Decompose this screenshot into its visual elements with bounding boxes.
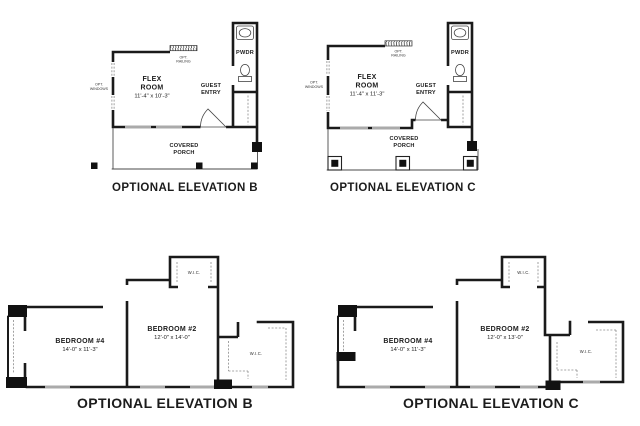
porch-column	[91, 163, 98, 170]
covered-porch-label: PORCH	[393, 143, 414, 149]
pwdr-label: PWDR	[451, 50, 469, 56]
guest-entry-label: ENTRY	[201, 90, 221, 96]
plan-caption: OPTIONAL ELEVATION B	[77, 395, 253, 411]
flex-room-dims: 11'-4" x 11'-3"	[350, 92, 385, 98]
toilet-tank-icon	[239, 77, 252, 82]
bedroom2-dims: 12'-0" x 13'-0"	[487, 335, 523, 341]
walls-path	[337, 256, 625, 389]
opt-windows-label: OPT.	[95, 83, 103, 87]
plan-bedrooms-elevation-c: W.I.C. W.I.C. BEDROOM #4 14'-0" x 11'-3"…	[337, 256, 625, 411]
wall-corner-block	[214, 380, 232, 390]
door-swing-icon	[201, 109, 227, 127]
guest-entry-label: GUEST	[201, 83, 222, 89]
flex-room-label: ROOM	[356, 83, 379, 90]
wall-corner-block	[546, 381, 561, 391]
floorplan-sheet: FLEX ROOM 11'-4" x 10'-3" PWDR GUEST ENT…	[0, 0, 640, 426]
guest-entry-label: ENTRY	[416, 90, 436, 96]
wall-corner-block	[337, 352, 356, 361]
porch-column	[196, 163, 203, 170]
wic-label: W.I.C.	[580, 349, 593, 354]
opt-railing-label: RAILING	[391, 54, 406, 58]
bedroom4-label: BEDROOM #4	[55, 338, 104, 345]
wall-corner-block	[6, 377, 27, 388]
sink-icon	[454, 29, 466, 37]
porch-column	[251, 163, 258, 170]
flex-room-dims: 11'-4" x 10'-3"	[134, 94, 169, 100]
wic-label: W.I.C.	[250, 351, 263, 356]
plan-bedrooms-elevation-b: W.I.C. W.I.C. BEDROOM #4 14'-0" x 11'-3"…	[6, 256, 294, 411]
bedroom2-label: BEDROOM #2	[480, 326, 529, 333]
plan-flex-elevation-b: FLEX ROOM 11'-4" x 10'-3" PWDR GUEST ENT…	[90, 22, 262, 194]
chimney-block	[338, 305, 357, 317]
chimney-block	[8, 305, 27, 317]
bedroom2-label: BEDROOM #2	[147, 326, 196, 333]
opt-windows-dashed	[112, 63, 248, 125]
covered-porch-label: PORCH	[173, 150, 194, 156]
toilet-icon	[241, 64, 250, 75]
plan-caption: OPTIONAL ELEVATION C	[403, 395, 579, 411]
porch-column-core	[399, 160, 406, 167]
porch-column-core	[467, 160, 474, 167]
toilet-icon	[456, 64, 465, 75]
railing-hatch-icon	[385, 41, 412, 46]
plan-flex-elevation-c: FLEX ROOM 11'-4" x 11'-3" PWDR GUEST ENT…	[305, 22, 478, 194]
opt-windows-label: WINDOWS	[305, 85, 324, 89]
walls-path	[25, 256, 294, 389]
wic-label: W.I.C.	[188, 270, 201, 275]
opt-windows-label: WINDOWS	[90, 87, 109, 91]
walls-path	[327, 22, 474, 145]
guest-entry-label: GUEST	[416, 83, 437, 89]
opt-windows-label: OPT.	[310, 81, 318, 85]
flex-room-label: FLEX	[357, 74, 376, 81]
opt-railing-label: RAILING	[176, 60, 191, 64]
flex-room-label: ROOM	[141, 85, 164, 92]
plan-caption: OPTIONAL ELEVATION B	[112, 182, 258, 194]
bedroom2-dims: 12'-0" x 14'-0"	[154, 335, 190, 341]
wall-corner-block	[252, 142, 262, 152]
bedroom4-dims: 14'-0" x 11'-3"	[62, 347, 97, 353]
plan-caption: OPTIONAL ELEVATION C	[330, 182, 476, 194]
floorplan-drawing: FLEX ROOM 11'-4" x 10'-3" PWDR GUEST ENT…	[0, 0, 640, 426]
porch-column-core	[331, 160, 338, 167]
wic-label: W.I.C.	[517, 270, 530, 275]
wall-corner-block	[467, 141, 477, 151]
pwdr-label: PWDR	[236, 50, 254, 56]
covered-porch-label: COVERED	[389, 136, 418, 142]
toilet-tank-icon	[454, 77, 467, 82]
covered-porch-label: COVERED	[169, 143, 198, 149]
opt-windows-dashed	[327, 61, 463, 125]
railing-hatch-icon	[170, 46, 197, 51]
flex-room-label: FLEX	[142, 76, 161, 83]
door-swing-icon	[416, 102, 442, 120]
bedroom4-label: BEDROOM #4	[383, 338, 432, 345]
sink-icon	[239, 29, 251, 37]
bedroom4-dims: 14'-0" x 11'-3"	[390, 347, 425, 353]
